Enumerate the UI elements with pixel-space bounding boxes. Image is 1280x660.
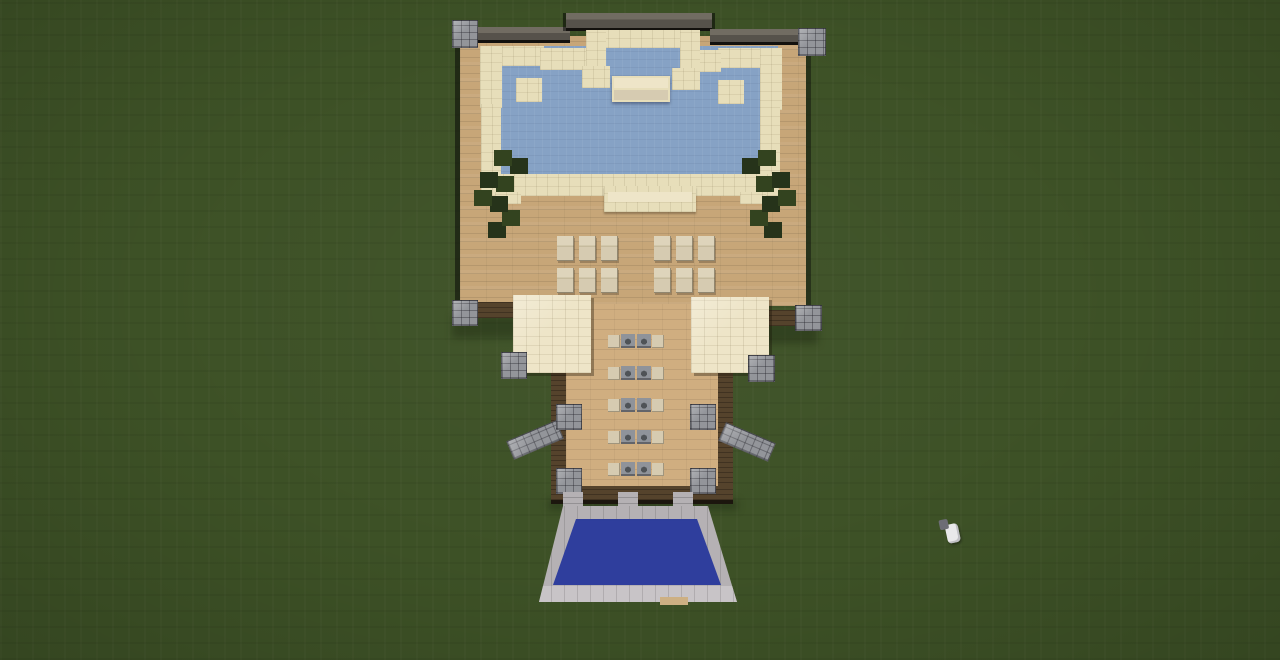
- corner-pillar-mid-left: [452, 300, 478, 326]
- corner-pillar-top-left: [452, 20, 478, 48]
- lounge-chair: [579, 268, 596, 293]
- table-slab: [608, 431, 620, 444]
- roof-wall-center: [566, 13, 712, 31]
- lounge-chair: [601, 236, 618, 261]
- sand-block: [660, 597, 688, 605]
- table-slab: [608, 399, 620, 412]
- canopy-pillar-left: [501, 352, 527, 379]
- walkway-table-row: [608, 398, 664, 412]
- table-gray-block: [637, 366, 651, 380]
- walkway-tables: [608, 334, 664, 494]
- pool-bay-step: [582, 66, 610, 88]
- table-gray-block: [621, 462, 635, 476]
- lounge-chair: [676, 236, 693, 261]
- roof-wall-right: [710, 29, 802, 45]
- lounge-chair: [698, 268, 715, 293]
- canopy-pillar-right: [748, 355, 775, 382]
- pool-exit-step: [608, 192, 692, 202]
- lounge-chair: [601, 268, 618, 293]
- tree-right: [758, 150, 776, 166]
- walkway-pillar: [556, 468, 582, 494]
- lounge-chair: [698, 236, 715, 261]
- walkway-table-row: [608, 366, 664, 380]
- table-slab: [652, 399, 664, 412]
- minecraft-world-view[interactable]: [0, 0, 1280, 660]
- hot-tub-right-corner: [718, 80, 744, 104]
- lounge-chair-group-right: [654, 236, 715, 293]
- table-slab: [608, 463, 620, 476]
- table-gray-block: [637, 430, 651, 444]
- lounge-chair: [654, 236, 671, 261]
- pool-side-wall-right: [760, 106, 780, 180]
- corner-pillar-mid-right: [795, 305, 822, 331]
- table-gray-block: [637, 398, 651, 412]
- chicken-head: [938, 519, 949, 531]
- table-slab: [652, 431, 664, 444]
- diving-platform-step: [614, 78, 668, 88]
- pool-bay-step: [672, 68, 700, 90]
- diving-platform-step: [614, 90, 668, 100]
- lounge-chair: [557, 236, 574, 261]
- tree-left: [494, 150, 512, 166]
- table-slab: [608, 335, 620, 348]
- lounge-chair: [654, 268, 671, 293]
- diving-platform: [612, 76, 670, 102]
- table-gray-block: [637, 334, 651, 348]
- walkway-pillar: [690, 404, 716, 430]
- table-slab: [652, 335, 664, 348]
- front-pool: [538, 506, 738, 602]
- hot-tub-left-wall: [480, 46, 502, 108]
- lounge-chair: [557, 268, 574, 293]
- corner-pillar-top-right: [798, 28, 826, 56]
- walkway-table-row: [608, 430, 664, 444]
- roof-wall-left: [477, 27, 570, 43]
- walkway-pillar: [556, 404, 582, 430]
- lounge-chair-group-left: [557, 236, 618, 293]
- walkway-pillar: [690, 468, 716, 494]
- table-gray-block: [637, 462, 651, 476]
- chicken: [938, 516, 965, 548]
- front-pool-border-bottom: [538, 586, 738, 602]
- walkway-table-row: [608, 334, 664, 348]
- walkway-table-row: [608, 462, 664, 476]
- table-gray-block: [621, 366, 635, 380]
- pool-side-wall-left: [481, 104, 501, 180]
- table-slab: [652, 463, 664, 476]
- table-gray-block: [621, 430, 635, 444]
- table-slab: [652, 367, 664, 380]
- table-gray-block: [621, 398, 635, 412]
- lounge-chair: [579, 236, 596, 261]
- table-slab: [608, 367, 620, 380]
- table-gray-block: [621, 334, 635, 348]
- hot-tub-left-corner: [516, 78, 542, 102]
- pool-bottom-cap: [495, 192, 521, 204]
- pool-bottom-cap: [740, 192, 766, 204]
- lounge-chair: [676, 268, 693, 293]
- hot-tub-right-wall: [760, 48, 782, 110]
- pool-exit-steps: [604, 186, 696, 212]
